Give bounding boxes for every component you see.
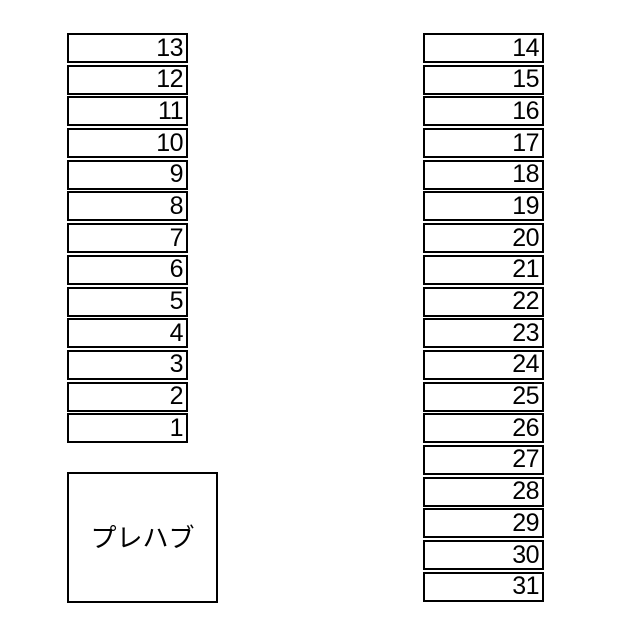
- parking-space-number: 21: [512, 257, 539, 282]
- parking-space-cell: 29: [423, 508, 544, 538]
- parking-space-cell: 19: [423, 191, 544, 221]
- parking-space-number: 15: [512, 67, 539, 92]
- parking-space-cell: 11: [67, 96, 188, 126]
- parking-space-number: 6: [170, 257, 183, 282]
- parking-space-number: 14: [512, 36, 539, 61]
- parking-space-number: 18: [512, 162, 539, 187]
- parking-space-number: 16: [512, 99, 539, 124]
- parking-space-cell: 18: [423, 160, 544, 190]
- parking-space-number: 4: [170, 321, 183, 346]
- parking-column-right: 141516171819202122232425262728293031: [423, 33, 544, 602]
- parking-space-cell: 22: [423, 287, 544, 317]
- parking-space-cell: 1: [67, 413, 188, 443]
- parking-space-number: 22: [512, 289, 539, 314]
- parking-space-cell: 14: [423, 33, 544, 63]
- parking-space-number: 19: [512, 194, 539, 219]
- parking-space-number: 7: [170, 226, 183, 251]
- parking-space-number: 30: [512, 543, 539, 568]
- parking-space-number: 1: [170, 416, 183, 441]
- parking-space-number: 10: [156, 131, 183, 156]
- parking-space-cell: 3: [67, 350, 188, 380]
- parking-space-cell: 13: [67, 33, 188, 63]
- parking-space-number: 29: [512, 511, 539, 536]
- parking-space-cell: 5: [67, 287, 188, 317]
- parking-space-cell: 26: [423, 413, 544, 443]
- parking-space-cell: 20: [423, 223, 544, 253]
- parking-space-cell: 2: [67, 382, 188, 412]
- parking-space-number: 9: [170, 162, 183, 187]
- parking-space-cell: 4: [67, 318, 188, 348]
- parking-space-number: 23: [512, 321, 539, 346]
- parking-space-cell: 24: [423, 350, 544, 380]
- parking-layout-map: 13121110987654321 1415161718192021222324…: [0, 0, 640, 639]
- parking-space-cell: 10: [67, 128, 188, 158]
- parking-space-number: 5: [170, 289, 183, 314]
- parking-space-number: 3: [170, 352, 183, 377]
- parking-space-cell: 31: [423, 572, 544, 602]
- parking-space-number: 26: [512, 416, 539, 441]
- parking-column-left: 13121110987654321: [67, 33, 188, 443]
- parking-space-number: 20: [512, 226, 539, 251]
- parking-space-cell: 17: [423, 128, 544, 158]
- parking-space-number: 11: [158, 99, 183, 124]
- parking-space-cell: 12: [67, 65, 188, 95]
- parking-space-cell: 9: [67, 160, 188, 190]
- parking-space-cell: 15: [423, 65, 544, 95]
- parking-space-number: 17: [512, 131, 539, 156]
- parking-space-number: 28: [512, 479, 539, 504]
- parking-space-number: 2: [170, 384, 183, 409]
- parking-space-cell: 25: [423, 382, 544, 412]
- parking-space-cell: 6: [67, 255, 188, 285]
- prefab-box: プレハブ: [67, 472, 218, 603]
- prefab-label: プレハブ: [90, 525, 194, 551]
- parking-space-cell: 7: [67, 223, 188, 253]
- parking-space-number: 31: [512, 574, 539, 599]
- parking-space-number: 13: [156, 36, 183, 61]
- parking-space-cell: 21: [423, 255, 544, 285]
- parking-space-cell: 16: [423, 96, 544, 126]
- parking-space-number: 24: [512, 352, 539, 377]
- parking-space-cell: 30: [423, 540, 544, 570]
- parking-space-number: 27: [512, 447, 539, 472]
- parking-space-cell: 28: [423, 477, 544, 507]
- parking-space-cell: 27: [423, 445, 544, 475]
- parking-space-cell: 8: [67, 191, 188, 221]
- parking-space-number: 8: [170, 194, 183, 219]
- parking-space-cell: 23: [423, 318, 544, 348]
- parking-space-number: 12: [156, 67, 183, 92]
- parking-space-number: 25: [512, 384, 539, 409]
